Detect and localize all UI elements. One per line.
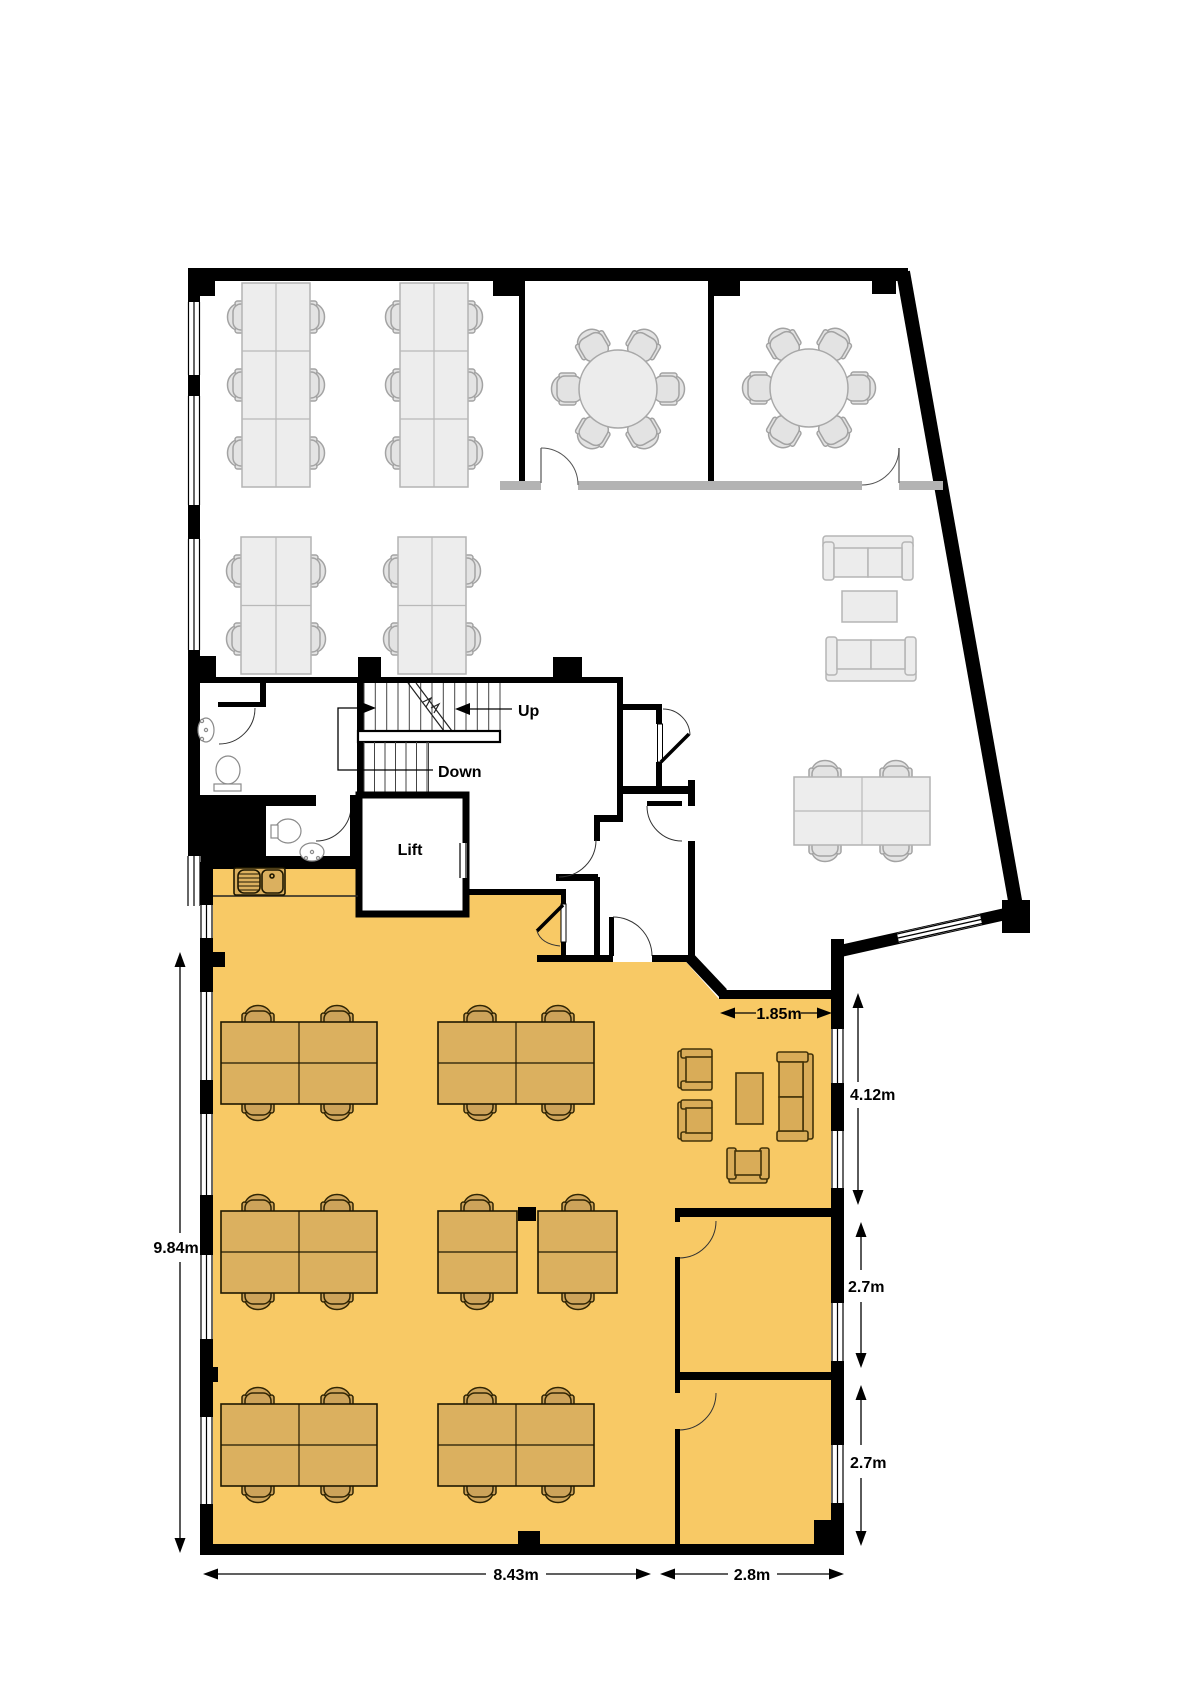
- svg-text:Lift: Lift: [398, 842, 424, 859]
- svg-text:4.12m: 4.12m: [850, 1087, 895, 1104]
- svg-text:1.85m: 1.85m: [756, 1006, 801, 1023]
- svg-text:8.43m: 8.43m: [493, 1567, 538, 1584]
- svg-text:2.8m: 2.8m: [734, 1567, 770, 1584]
- svg-text:Up: Up: [518, 703, 540, 720]
- svg-text:2.7m: 2.7m: [848, 1279, 884, 1296]
- svg-text:Down: Down: [438, 764, 482, 781]
- svg-text:2.7m: 2.7m: [850, 1455, 886, 1472]
- svg-text:9.84m: 9.84m: [153, 1240, 198, 1257]
